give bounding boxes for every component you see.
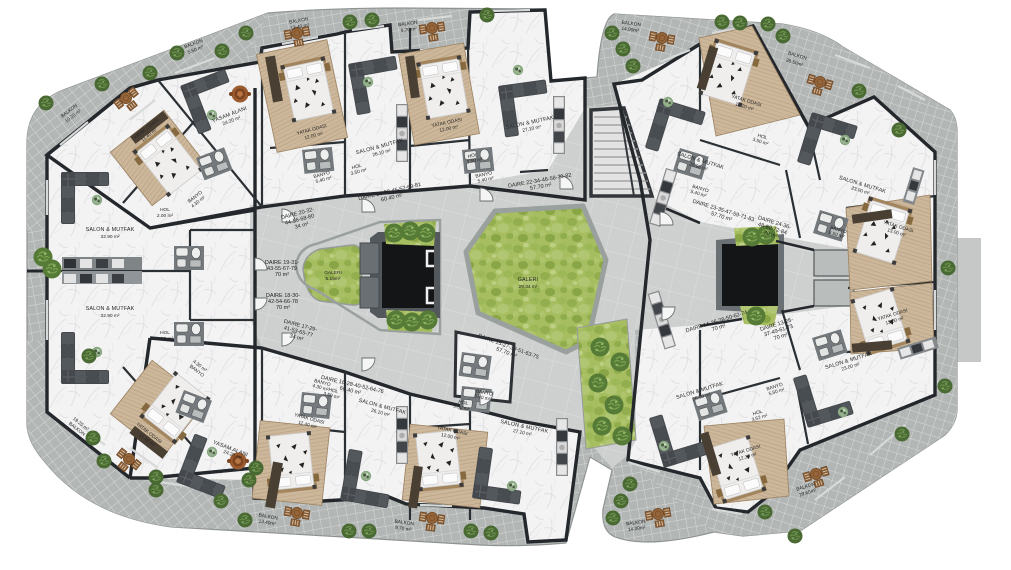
svg-text:29.34 m²: 29.34 m² xyxy=(519,284,538,290)
svg-text:2.00 m²: 2.00 m² xyxy=(157,213,174,219)
svg-text:GALERI: GALERI xyxy=(324,270,342,276)
svg-text:70 m²: 70 m² xyxy=(275,272,289,278)
svg-text:SALON & MUTFAK: SALON & MUTFAK xyxy=(86,306,135,312)
svg-text:32.90 m²: 32.90 m² xyxy=(101,234,120,240)
svg-text:5.15m²: 5.15m² xyxy=(326,276,341,282)
svg-text:SALON & MUTFAK: SALON & MUTFAK xyxy=(86,227,135,233)
svg-text:HOL: HOL xyxy=(160,330,170,336)
svg-text:32.90 m²: 32.90 m² xyxy=(101,313,120,319)
svg-text:GALERI: GALERI xyxy=(518,277,539,283)
svg-text:2.00 m²: 2.00 m² xyxy=(157,336,174,342)
svg-text:70 m²: 70 m² xyxy=(276,305,290,311)
svg-text:HOL: HOL xyxy=(160,207,170,213)
